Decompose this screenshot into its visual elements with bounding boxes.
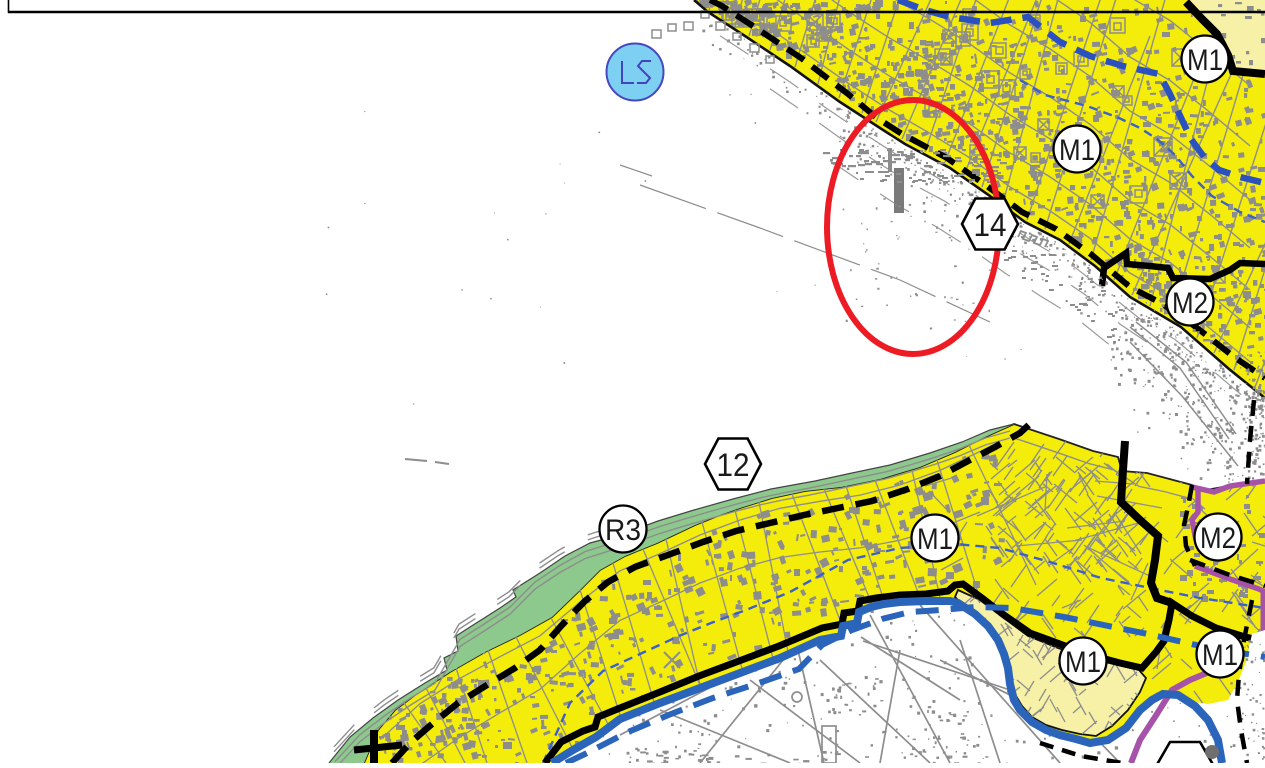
svg-text:M1: M1	[1202, 639, 1238, 672]
svg-text:14: 14	[974, 207, 1007, 243]
svg-text:M2: M2	[1172, 287, 1208, 320]
svg-text:M1: M1	[1065, 646, 1101, 679]
svg-text:12: 12	[717, 447, 750, 483]
svg-text:M1: M1	[917, 523, 953, 556]
svg-text:R3: R3	[605, 514, 641, 547]
svg-text:M1: M1	[1187, 44, 1223, 77]
svg-text:M2: M2	[1200, 522, 1236, 555]
svg-text:M1: M1	[1059, 134, 1095, 167]
